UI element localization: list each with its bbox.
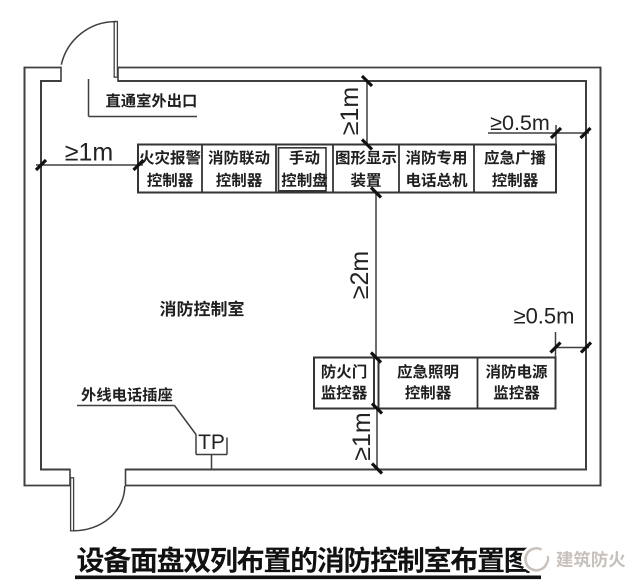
svg-text:≥1m: ≥1m <box>336 87 364 135</box>
svg-text:≥1m: ≥1m <box>65 139 113 167</box>
svg-text:≥0.5m: ≥0.5m <box>490 111 550 135</box>
svg-text:≥2m: ≥2m <box>346 251 374 299</box>
svg-text:≥1m: ≥1m <box>348 412 376 460</box>
svg-text:TP: TP <box>198 431 225 454</box>
svg-text:≥0.5m: ≥0.5m <box>514 304 575 329</box>
